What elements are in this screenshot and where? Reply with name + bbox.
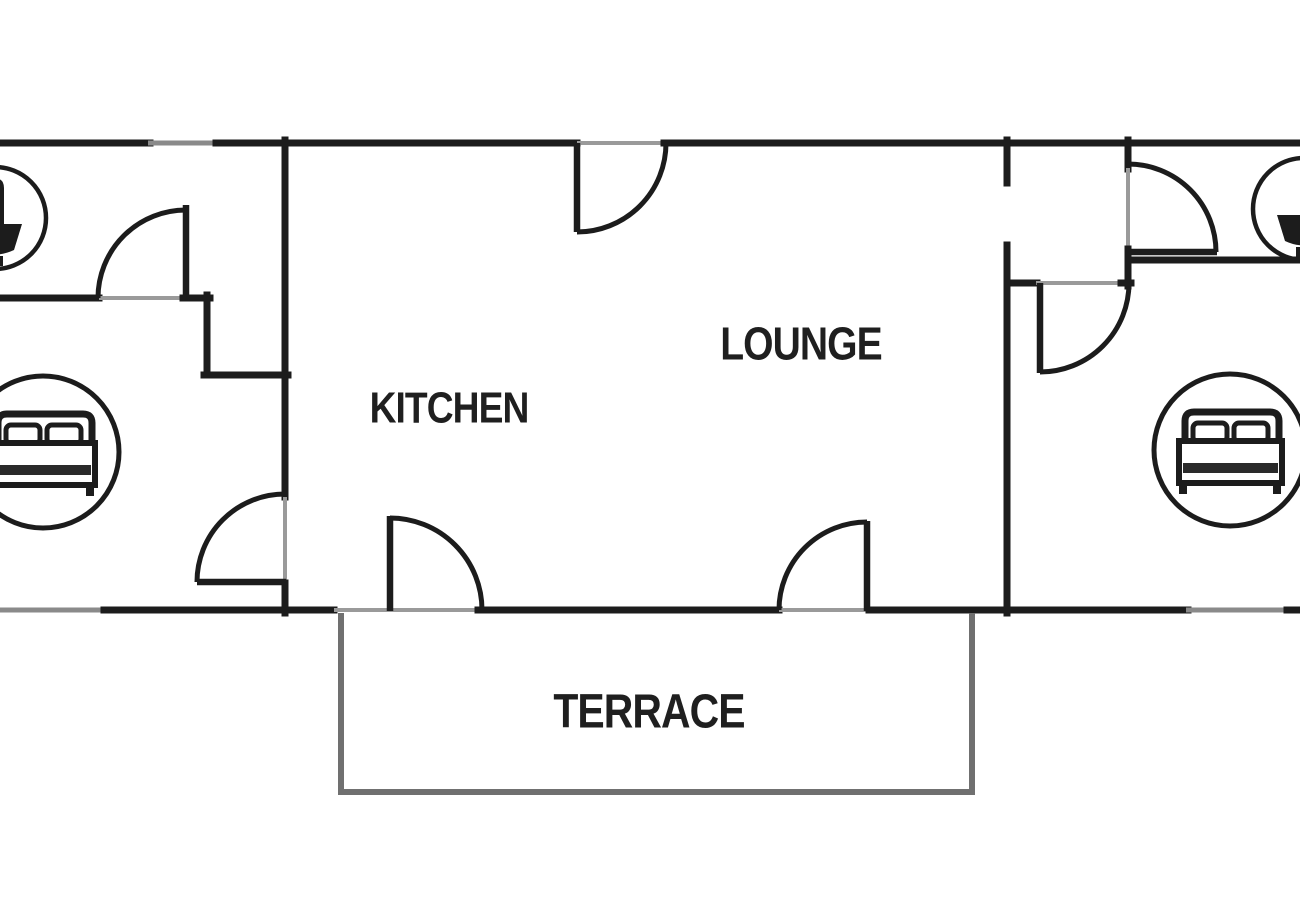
door-swing-arc-bathroom-right — [1128, 164, 1216, 252]
door-swing-arc-lounge-terrace — [779, 522, 867, 610]
floor-plan-drawing — [0, 0, 1300, 900]
washbasin-icon — [0, 167, 46, 269]
door-swing-arc-entry — [577, 143, 666, 232]
door-swing-arc-bedroom-left — [197, 494, 285, 582]
room-label-lounge: LOUNGE — [720, 321, 882, 367]
room-label-terrace: TERRACE — [553, 688, 744, 736]
room-label-kitchen: KITCHEN — [370, 386, 529, 430]
double-bed-icon — [0, 376, 119, 528]
double-bed-icon — [1154, 374, 1300, 526]
door-swing-arc-bathroom-left — [98, 210, 186, 298]
floor-plan: KITCHEN LOUNGE TERRACE — [0, 0, 1300, 900]
washbasin-icon — [1253, 158, 1300, 260]
door-swing-arc-kitchen-terrace — [390, 518, 482, 610]
door-swing-arc-bedroom-right — [1040, 283, 1129, 372]
